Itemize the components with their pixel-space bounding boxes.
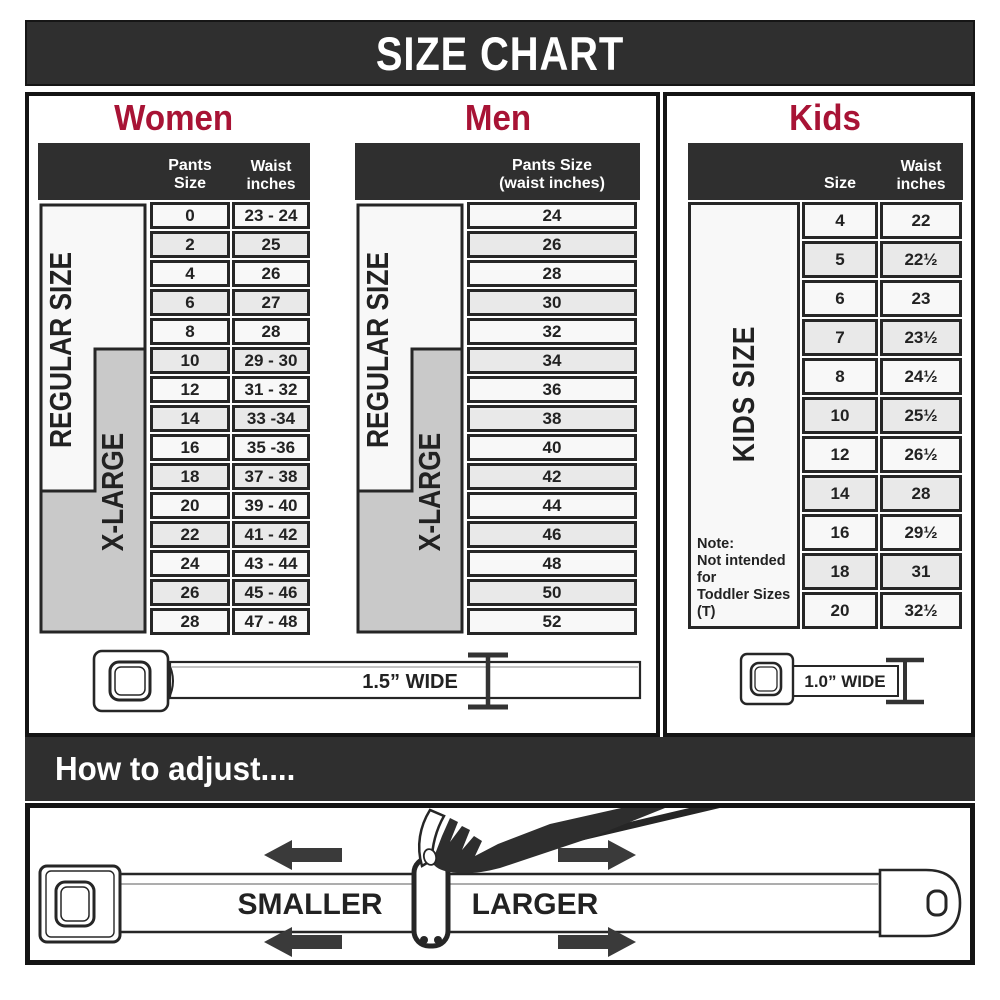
waist-cell: 47 - 48 [232,608,310,635]
table-row: 20 32½ [802,592,962,629]
table-row: 18 37 - 38 [150,463,310,490]
table-row: 8 28 [150,318,310,345]
table-row: 40 [467,434,637,461]
size-cell: 18 [802,553,878,590]
table-row: 46 [467,521,637,548]
waist-cell: 33 -34 [232,405,310,432]
belt-end-tip [880,870,960,936]
men-size-range-label: REGULAR SIZE X-LARGE [355,202,465,635]
table-row: 24 [467,202,637,229]
size-cell: 42 [467,463,637,490]
table-row: 24 43 - 44 [150,550,310,577]
size-cell: 12 [802,436,878,473]
size-cell: 26 [467,231,637,258]
table-row: 10 29 - 30 [150,347,310,374]
men-regular-size-label: REGULAR SIZE [361,252,395,448]
size-cell: 22 [150,521,230,548]
men-table: 24 26 28 30 32 34 36 [467,202,637,635]
kids-size-range-label: KIDS SIZE Note: Not intended for Toddler… [688,202,800,629]
size-cell: 4 [150,260,230,287]
table-row: 6 27 [150,289,310,316]
kids-table-header: Size Waist inches [688,143,963,200]
adjust-illustration: SMALLER LARGER [30,808,970,960]
size-cell: 20 [150,492,230,519]
left-arrow-icon [264,840,342,870]
size-cell: 24 [150,550,230,577]
table-row: 4 26 [150,260,310,287]
size-cell: 44 [467,492,637,519]
table-row: 14 28 [802,475,962,512]
size-cell: 7 [802,319,878,356]
women-heading: Women [38,96,310,140]
women-x-large-label: X-LARGE [96,433,130,551]
size-cell: 46 [467,521,637,548]
size-cell: 52 [467,608,637,635]
waist-cell: 24½ [880,358,962,395]
waist-cell: 28 [232,318,310,345]
table-row: 52 [467,608,637,635]
how-to-adjust-heading: How to adjust.... [55,750,295,788]
kids-heading: Kids [688,96,963,140]
waist-cell: 35 -36 [232,434,310,461]
waist-cell: 32½ [880,592,962,629]
waist-cell: 29½ [880,514,962,551]
size-cell: 24 [467,202,637,229]
table-row: 4 22 [802,202,962,239]
size-cell: 20 [802,592,878,629]
table-row: 12 26½ [802,436,962,473]
waist-cell: 26 [232,260,310,287]
table-row: 28 47 - 48 [150,608,310,635]
title-bar: SIZE CHART [25,20,975,86]
table-row: 26 [467,231,637,258]
size-cell: 28 [467,260,637,287]
size-cell: 12 [150,376,230,403]
waist-cell: 22½ [880,241,962,278]
waist-cell: 31 - 32 [232,376,310,403]
table-row: 12 31 - 32 [150,376,310,403]
waist-cell: 29 - 30 [232,347,310,374]
table-row: 22 41 - 42 [150,521,310,548]
waist-cell: 25½ [880,397,962,434]
seatbelt-buckle-icon [741,654,793,704]
table-row: 28 [467,260,637,287]
belt-tip-slot [928,891,946,915]
men-table-header: Pants Size (waist inches) [355,143,640,200]
table-row: 2 25 [150,231,310,258]
women-regular-size-label: REGULAR SIZE [44,252,78,448]
size-cell: 10 [150,347,230,374]
table-row: 8 24½ [802,358,962,395]
size-cell: 8 [802,358,878,395]
kids-table: 4 22 5 22½ 6 23 7 23½ 8 24½ [802,202,962,629]
men-heading: Men [355,96,640,140]
women-table-header: Pants Size Waist inches [38,143,310,200]
table-row: 5 22½ [802,241,962,278]
kids-size-label: KIDS SIZE [726,326,762,463]
table-row: 44 [467,492,637,519]
size-cell: 40 [467,434,637,461]
table-row: 10 25½ [802,397,962,434]
kids-width-label: 1.0” WIDE [804,672,885,691]
table-row: 7 23½ [802,319,962,356]
adult-width-label: 1.5” WIDE [362,671,458,693]
waist-cell: 39 - 40 [232,492,310,519]
table-row: 16 29½ [802,514,962,551]
waist-cell: 27 [232,289,310,316]
table-row: 50 [467,579,637,606]
kids-size-column-header: Size [802,175,878,193]
size-cell: 30 [467,289,637,316]
size-cell: 18 [150,463,230,490]
waist-cell: 41 - 42 [232,521,310,548]
size-cell: 6 [802,280,878,317]
size-cell: 0 [150,202,230,229]
table-row: 36 [467,376,637,403]
size-cell: 8 [150,318,230,345]
table-row: 30 [467,289,637,316]
waist-cell: 31 [880,553,962,590]
waist-cell: 45 - 46 [232,579,310,606]
men-pants-size-column-header: Pants Size (waist inches) [467,157,637,193]
size-cell: 26 [150,579,230,606]
size-cell: 10 [802,397,878,434]
seatbelt-buckle-icon [94,651,173,711]
hand-icon [419,808,670,873]
table-row: 6 23 [802,280,962,317]
table-row: 18 31 [802,553,962,590]
waist-cell: 26½ [880,436,962,473]
page-title: SIZE CHART [376,26,624,81]
women-waist-column-header: Waist inches [232,158,310,194]
size-cell: 4 [802,202,878,239]
size-cell: 36 [467,376,637,403]
size-chart-infographic: SIZE CHART Women Men Kids Pants Size Wai… [0,0,1000,1000]
table-row: 26 45 - 46 [150,579,310,606]
size-cell: 14 [802,475,878,512]
waist-cell: 37 - 38 [232,463,310,490]
belt-slider [414,858,448,946]
size-cell: 5 [802,241,878,278]
size-cell: 38 [467,405,637,432]
women-pants-size-column-header: Pants Size [150,157,230,193]
adult-belt-illustration: 1.5” WIDE [80,648,660,716]
size-cell: 32 [467,318,637,345]
waist-cell: 22 [880,202,962,239]
how-to-adjust-frame: SMALLER LARGER [25,803,975,965]
table-row: 14 33 -34 [150,405,310,432]
table-row: 20 39 - 40 [150,492,310,519]
kids-belt-illustration: 1.0” WIDE [735,650,935,708]
size-cell: 6 [150,289,230,316]
size-cell: 34 [467,347,637,374]
men-x-large-label: X-LARGE [413,433,447,551]
table-row: 0 23 - 24 [150,202,310,229]
table-row: 42 [467,463,637,490]
size-cell: 48 [467,550,637,577]
waist-cell: 25 [232,231,310,258]
waist-cell: 43 - 44 [232,550,310,577]
women-table: 0 23 - 24 2 25 4 26 6 27 8 28 [150,202,310,635]
table-row: 48 [467,550,637,577]
kids-note: Note: Not intended for Toddler Sizes (T) [697,536,797,621]
table-row: 34 [467,347,637,374]
smaller-label: SMALLER [238,888,383,921]
waist-cell: 23½ [880,319,962,356]
table-row: 38 [467,405,637,432]
size-cell: 16 [802,514,878,551]
waist-cell: 28 [880,475,962,512]
table-row: 16 35 -36 [150,434,310,461]
size-cell: 2 [150,231,230,258]
table-row: 32 [467,318,637,345]
women-size-range-label: REGULAR SIZE X-LARGE [38,202,148,635]
how-to-adjust-bar: How to adjust.... [25,737,975,801]
size-cell: 14 [150,405,230,432]
size-cell: 16 [150,434,230,461]
size-cell: 28 [150,608,230,635]
seatbelt-buckle-icon [40,866,120,942]
waist-cell: 23 - 24 [232,202,310,229]
kids-waist-column-header: Waist inches [880,158,962,194]
waist-cell: 23 [880,280,962,317]
larger-label: LARGER [472,888,599,921]
size-cell: 50 [467,579,637,606]
